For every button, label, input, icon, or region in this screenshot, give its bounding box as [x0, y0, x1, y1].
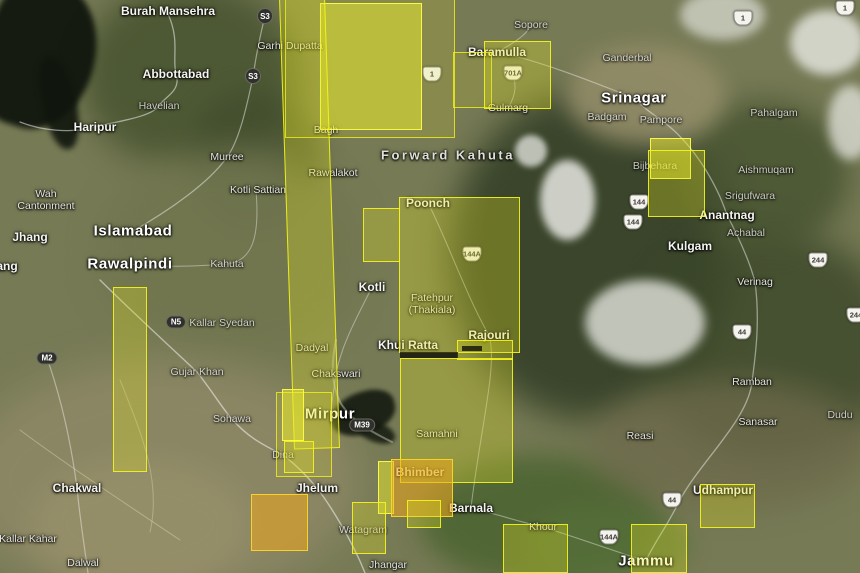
route-shield-n5-2: N5 — [166, 316, 186, 329]
route-shield-144-11: 144 — [624, 215, 643, 230]
route-shield-244-12: 244 — [809, 253, 828, 268]
route-shield-s3-1: S3 — [245, 68, 261, 84]
imagery-footprint-jammu-rect[interactable] — [631, 524, 687, 573]
imagery-footprint-watagram-rect[interactable] — [352, 502, 386, 554]
route-shield-144a-16: 144A — [600, 530, 619, 545]
imagery-footprint-mirpur-lower[interactable] — [284, 441, 314, 473]
route-shield-44-15: 44 — [663, 493, 682, 508]
satellite-map[interactable]: S3S3N5M2M39111701A144A144144244244444414… — [0, 0, 860, 573]
road-m2 — [47, 358, 88, 573]
drainage-1 — [20, 430, 180, 540]
route-shield-44-14: 44 — [733, 325, 752, 340]
imagery-footprint-kotli-small[interactable] — [363, 208, 400, 262]
footprint-gap-bar-0 — [400, 352, 458, 358]
imagery-footprint-barnala-tab[interactable] — [407, 500, 441, 528]
route-shield-m39-4: M39 — [349, 419, 375, 432]
imagery-footprint-poonch-rajouri[interactable] — [399, 197, 520, 353]
imagery-footprint-khour-rect[interactable] — [503, 524, 568, 573]
route-shield-144-10: 144 — [630, 195, 649, 210]
imagery-footprint-pampore-large[interactable] — [648, 150, 705, 217]
route-shield-1-5: 1 — [734, 11, 753, 26]
imagery-footprint-udhampur-rect[interactable] — [700, 484, 755, 528]
route-shield-s3-0: S3 — [257, 8, 273, 24]
route-shield-m2-3: M2 — [36, 352, 57, 365]
imagery-footprint-baramulla-gulmarg[interactable] — [484, 41, 551, 109]
imagery-footprint-top-bright-block[interactable] — [320, 3, 422, 130]
imagery-footprint-mirpur-bright[interactable] — [282, 389, 304, 441]
road-n35 — [20, 14, 177, 131]
route-shield-244-13: 244 — [847, 308, 860, 323]
route-shield-1-6: 1 — [836, 1, 855, 16]
imagery-footprint-chakwal-strip[interactable] — [113, 287, 147, 472]
road-kahuta — [130, 191, 257, 266]
footprint-gap-bar-1 — [462, 346, 482, 351]
road-murree — [133, 16, 265, 231]
imagery-footprint-jhelum-orange[interactable] — [251, 494, 308, 551]
